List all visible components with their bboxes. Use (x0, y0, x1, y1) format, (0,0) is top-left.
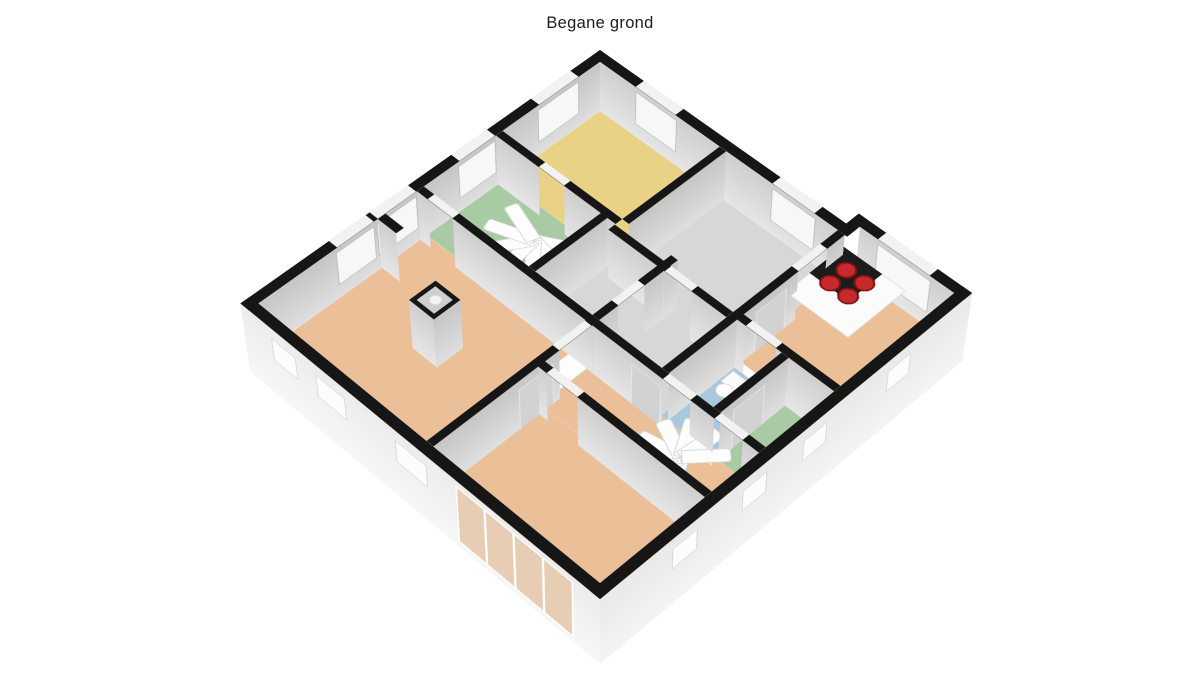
floorplan-canvas: Begane grond (0, 0, 1200, 675)
spiral-stair-step (681, 448, 732, 464)
perspective-wrapper (0, 0, 1200, 675)
